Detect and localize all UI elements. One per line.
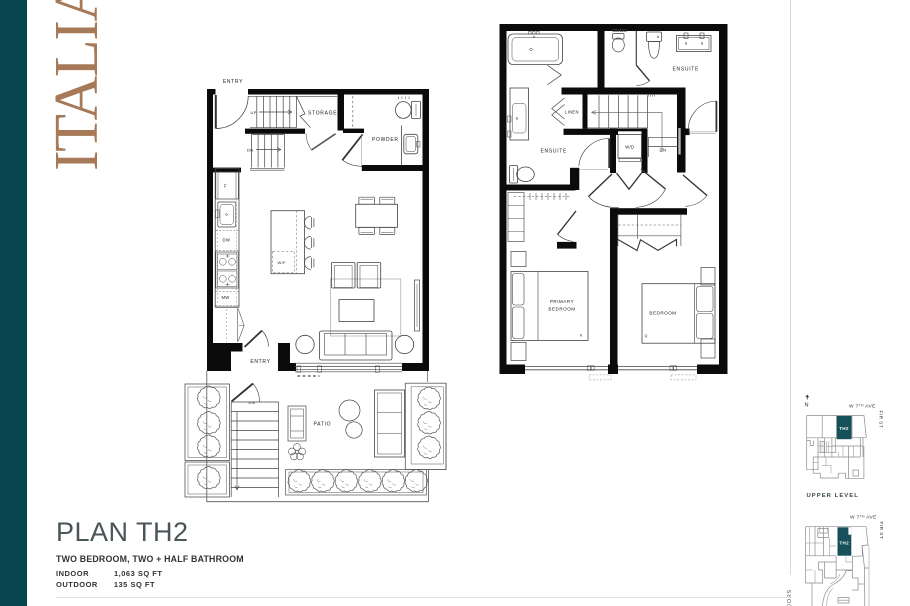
svg-text:K: K xyxy=(580,334,583,338)
svg-text:ENSUITE: ENSUITE xyxy=(541,149,568,155)
svg-text:F: F xyxy=(224,184,227,189)
svg-text:W/F: W/F xyxy=(278,260,286,265)
svg-text:LINEN: LINEN xyxy=(565,110,579,115)
svg-text:PRIMARY: PRIMARY xyxy=(550,299,574,304)
svg-text:FIR ST: FIR ST xyxy=(878,522,884,540)
svg-text:W 7TH AVE: W 7TH AVE xyxy=(850,514,877,520)
svg-text:STORAGE: STORAGE xyxy=(308,111,337,117)
svg-text:MW: MW xyxy=(222,295,230,300)
svg-text:W 7TH AVE: W 7TH AVE xyxy=(849,403,876,409)
svg-text:TH2: TH2 xyxy=(839,541,849,546)
svg-text:PATIO: PATIO xyxy=(314,422,332,428)
svg-text:ENSUITE: ENSUITE xyxy=(673,67,700,73)
svg-text:BEDROOM: BEDROOM xyxy=(548,307,575,312)
svg-text:UPPER LEVEL: UPPER LEVEL xyxy=(807,493,859,499)
svg-text:Q: Q xyxy=(645,334,648,338)
svg-text:POWDER: POWDER xyxy=(372,137,399,143)
svg-text:DN: DN xyxy=(247,147,254,152)
svg-text:UP: UP xyxy=(251,110,257,115)
svg-text:DW: DW xyxy=(223,238,231,243)
svg-text:FIR ST: FIR ST xyxy=(878,411,884,429)
svg-text:N: N xyxy=(805,403,809,409)
svg-text:ENTRY: ENTRY xyxy=(223,79,243,85)
svg-text:ENTRY: ENTRY xyxy=(250,359,270,365)
svg-text:DN: DN xyxy=(660,148,667,153)
svg-text:W/D: W/D xyxy=(625,144,634,149)
svg-text:BEDROOM: BEDROOM xyxy=(649,311,676,316)
svg-text:TH2: TH2 xyxy=(839,426,849,431)
